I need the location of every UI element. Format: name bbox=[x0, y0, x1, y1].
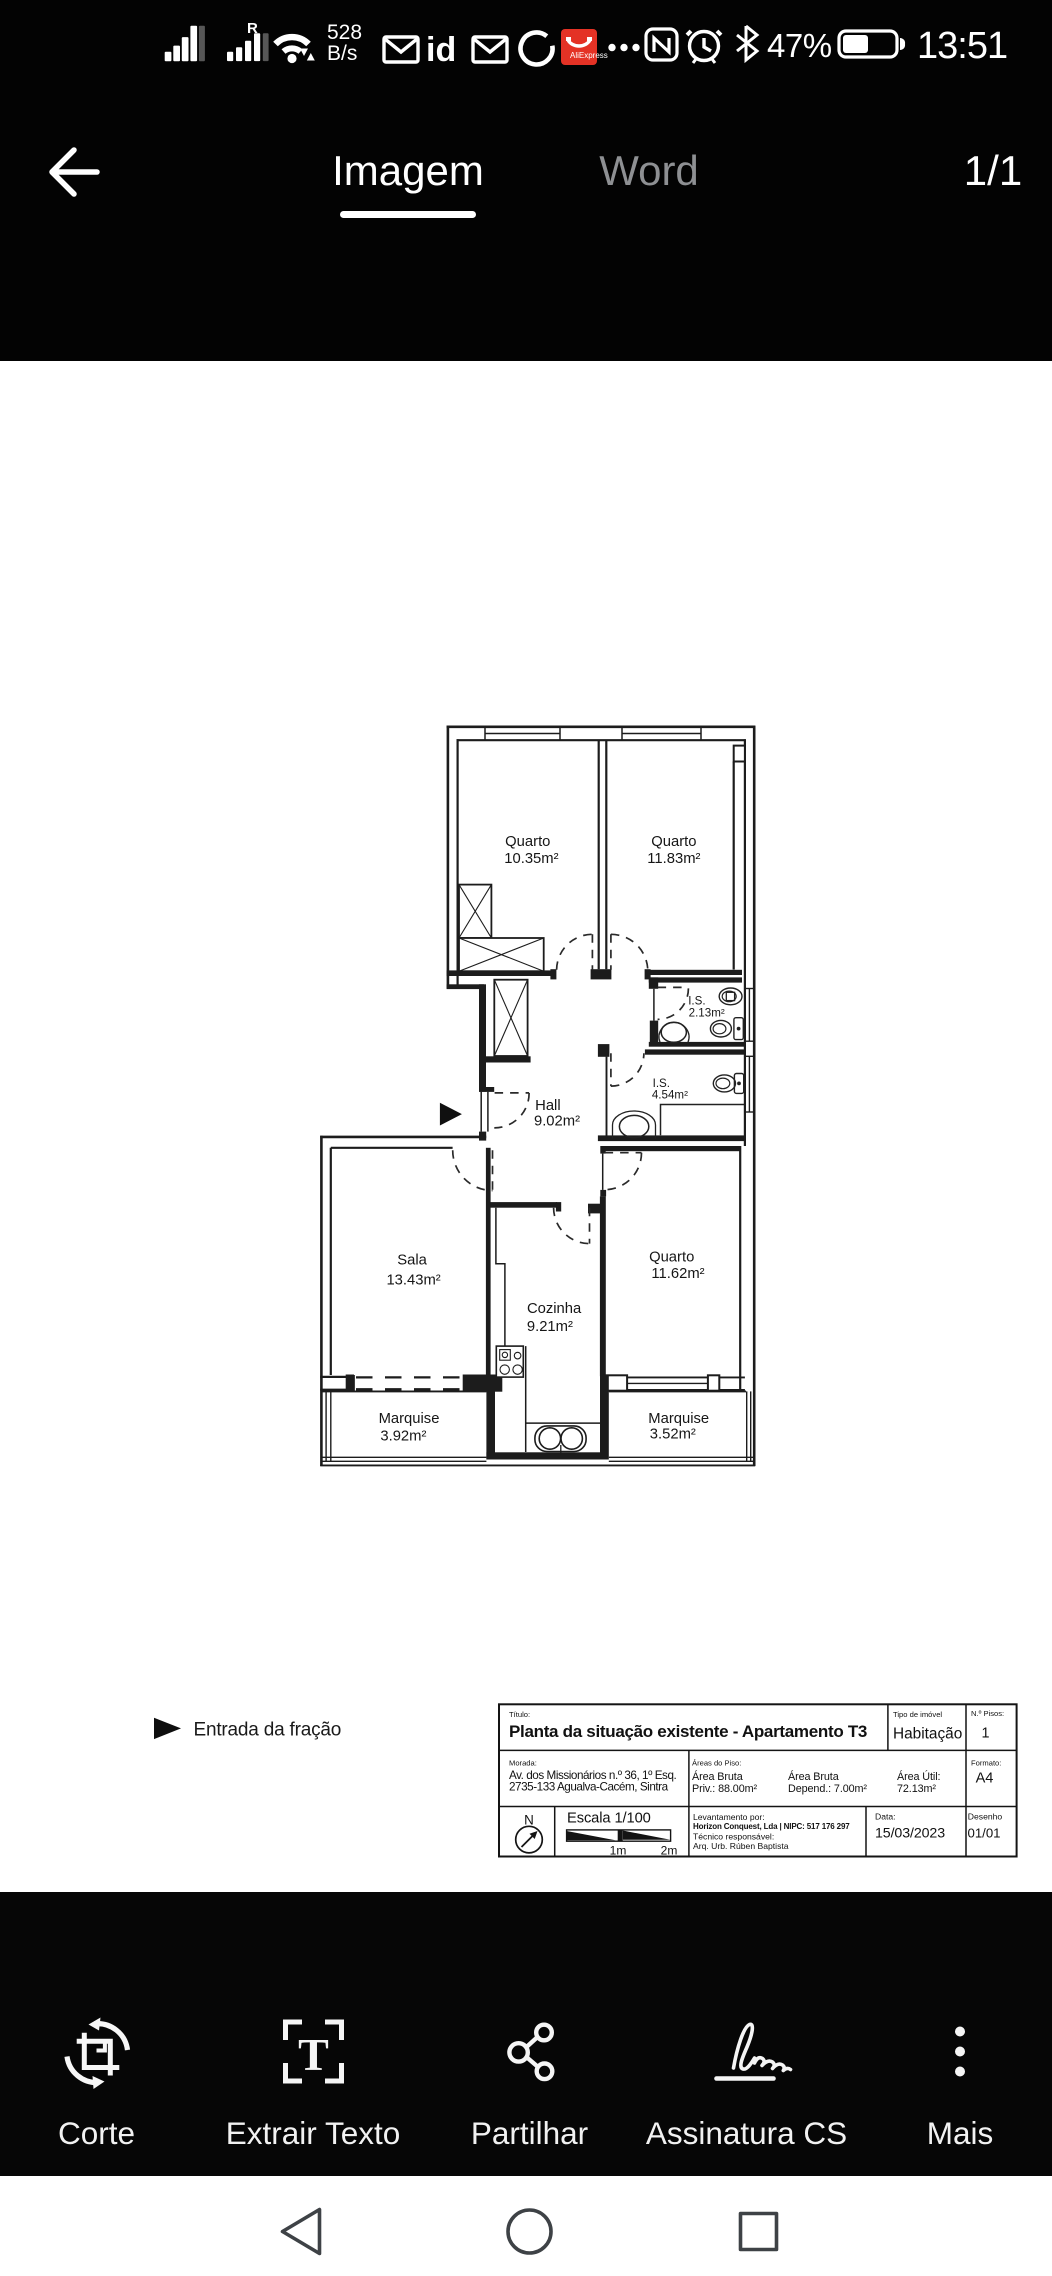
svg-text:Entrada da fração: Entrada da fração bbox=[194, 1719, 342, 1740]
svg-text:2m: 2m bbox=[661, 1843, 678, 1857]
svg-text:13:51: 13:51 bbox=[917, 25, 1007, 67]
svg-text:Hall: Hall bbox=[535, 1098, 561, 1114]
svg-text:Área Bruta: Área Bruta bbox=[692, 1770, 743, 1783]
svg-text:Escala 1/100: Escala 1/100 bbox=[567, 1811, 651, 1827]
svg-text:AliExpress: AliExpress bbox=[570, 51, 608, 60]
svg-text:528: 528 bbox=[327, 21, 362, 44]
svg-text:T: T bbox=[298, 2029, 329, 2080]
svg-text:Assinatura CS: Assinatura CS bbox=[646, 2115, 847, 2151]
svg-text:Cozinha: Cozinha bbox=[527, 1301, 582, 1317]
svg-text:Título:: Título: bbox=[509, 1710, 530, 1719]
svg-text:Arq. Urb. Rúben Baptista: Arq. Urb. Rúben Baptista bbox=[693, 1841, 789, 1851]
svg-text:Extrair Texto: Extrair Texto bbox=[226, 2115, 400, 2151]
svg-text:1/1: 1/1 bbox=[964, 147, 1022, 194]
svg-text:4.54m²: 4.54m² bbox=[652, 1089, 688, 1102]
svg-text:1m: 1m bbox=[610, 1843, 627, 1857]
svg-text:Quarto: Quarto bbox=[649, 1250, 694, 1266]
svg-text:Área Bruta: Área Bruta bbox=[788, 1770, 839, 1783]
svg-text:id: id bbox=[426, 31, 456, 69]
svg-text:Depend.: 7.00m²: Depend.: 7.00m² bbox=[788, 1783, 867, 1795]
svg-text:N.º Pisos:: N.º Pisos: bbox=[971, 1709, 1004, 1718]
svg-text:Desenho: Desenho bbox=[968, 1812, 1003, 1822]
svg-text:Mais: Mais bbox=[927, 2115, 994, 2151]
svg-text:Planta da situação existente -: Planta da situação existente - Apartamen… bbox=[509, 1722, 867, 1741]
svg-text:Data:: Data: bbox=[875, 1812, 896, 1822]
svg-text:A4: A4 bbox=[976, 1771, 994, 1787]
svg-text:11.62m²: 11.62m² bbox=[651, 1266, 704, 1282]
svg-text:Imagem: Imagem bbox=[332, 147, 484, 194]
svg-text:B/s: B/s bbox=[327, 42, 357, 65]
svg-text:Áreas do Piso:: Áreas do Piso: bbox=[692, 1758, 741, 1767]
svg-text:Word: Word bbox=[599, 147, 699, 194]
svg-text:72.13m²: 72.13m² bbox=[897, 1783, 936, 1795]
svg-text:Quarto: Quarto bbox=[505, 834, 550, 850]
svg-text:Marquise: Marquise bbox=[379, 1411, 440, 1427]
svg-text:Sala: Sala bbox=[397, 1253, 427, 1269]
svg-text:N: N bbox=[524, 1813, 534, 1828]
svg-text:Corte: Corte bbox=[58, 2115, 135, 2151]
svg-text:15/03/2023: 15/03/2023 bbox=[875, 1826, 945, 1842]
svg-text:Priv.: 88.00m²: Priv.: 88.00m² bbox=[692, 1783, 758, 1795]
svg-text:11.83m²: 11.83m² bbox=[647, 851, 700, 867]
svg-text:Horizon Conquest, Lda | NIPC:: Horizon Conquest, Lda | NIPC: 517 176 29… bbox=[693, 1822, 850, 1831]
svg-text:Partilhar: Partilhar bbox=[471, 2115, 588, 2151]
svg-text:01/01: 01/01 bbox=[967, 1826, 1000, 1841]
svg-text:Quarto: Quarto bbox=[651, 834, 696, 850]
svg-text:9.21m²: 9.21m² bbox=[527, 1319, 573, 1335]
svg-text:Formato:: Formato: bbox=[971, 1758, 1001, 1767]
svg-text:Habitação: Habitação bbox=[893, 1726, 962, 1743]
svg-text:Área Útil:: Área Útil: bbox=[897, 1770, 941, 1783]
svg-text:2735-133 Agualva-Cacém, Sintra: 2735-133 Agualva-Cacém, Sintra bbox=[509, 1780, 669, 1793]
svg-text:3.52m²: 3.52m² bbox=[650, 1427, 696, 1443]
svg-text:Morada:: Morada: bbox=[509, 1758, 537, 1767]
svg-text:47%: 47% bbox=[767, 27, 832, 64]
svg-text:10.35m²: 10.35m² bbox=[504, 851, 558, 867]
svg-text:9.02m²: 9.02m² bbox=[534, 1113, 580, 1129]
svg-text:Tipo de imóvel: Tipo de imóvel bbox=[893, 1710, 942, 1719]
svg-text:Levantamento por:: Levantamento por: bbox=[693, 1812, 765, 1822]
svg-text:Marquise: Marquise bbox=[648, 1411, 709, 1427]
svg-text:13.43m²: 13.43m² bbox=[386, 1272, 440, 1288]
svg-text:1: 1 bbox=[981, 1726, 989, 1742]
svg-text:2.13m²: 2.13m² bbox=[689, 1006, 725, 1019]
svg-text:3.92m²: 3.92m² bbox=[380, 1428, 426, 1444]
